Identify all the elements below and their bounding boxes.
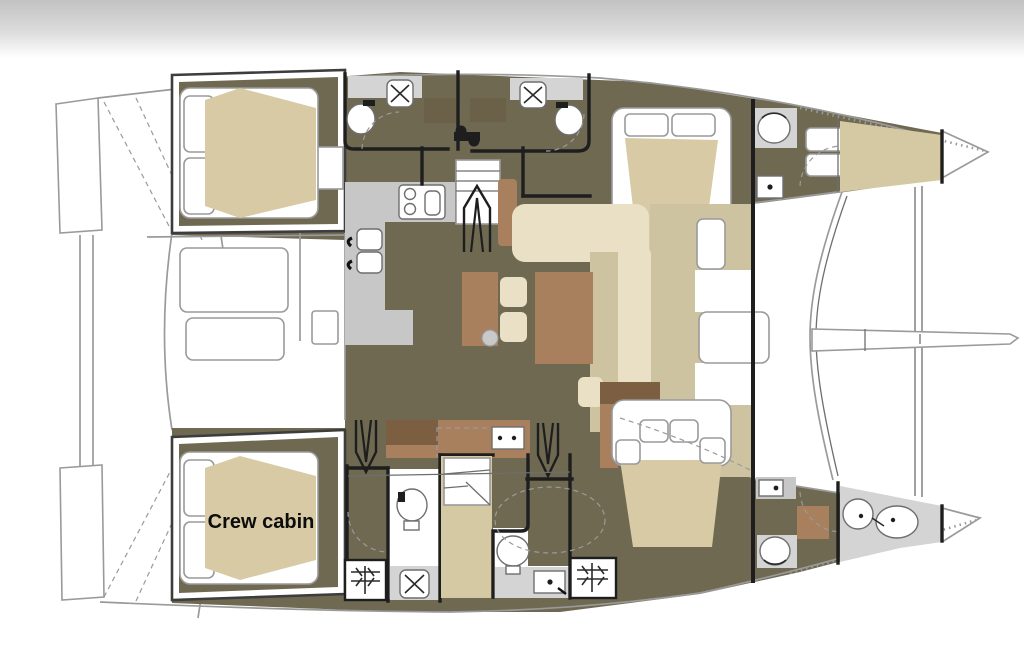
pillow [625, 114, 668, 136]
port-transom-platform [56, 98, 102, 233]
aft-cabinet-dark [386, 420, 438, 445]
stool [500, 277, 527, 307]
port-bow-tip [942, 131, 988, 178]
walkway [695, 270, 751, 312]
pillow [670, 420, 698, 442]
top-gradient-band [0, 0, 1024, 58]
aft-cabinet [386, 420, 530, 458]
walkway [695, 363, 751, 405]
toilet-icon [758, 113, 790, 143]
washbasin-icon [534, 571, 566, 594]
nav-seat [697, 219, 725, 269]
vent-grate-icon [345, 560, 386, 600]
cockpit-step [312, 311, 338, 344]
pillow [640, 420, 668, 442]
foredeck [810, 186, 1018, 497]
bed-arm [616, 440, 640, 464]
bowsprit-spine [812, 329, 1018, 351]
floor-plan: Crew cabin [0, 0, 1024, 671]
head-locker [424, 98, 459, 123]
port-transom-steps [104, 102, 170, 228]
pillow [672, 114, 715, 136]
cockpit [147, 233, 345, 360]
table-leg [482, 330, 498, 346]
cockpit-bench [180, 248, 288, 312]
starboard-transom-steps [104, 472, 170, 597]
crew-cabin: Crew cabin [172, 430, 345, 600]
double-bed-mattress [620, 460, 722, 547]
washbasin-icon [759, 480, 783, 496]
shower-icon [520, 82, 546, 108]
washbasin-icon [757, 176, 783, 198]
bed-arm [700, 438, 725, 463]
head-locker [470, 98, 506, 122]
galley-floor [345, 310, 413, 345]
shower-icon [400, 570, 429, 598]
wardrobe [441, 456, 492, 598]
double-bed-mattress [205, 88, 316, 218]
cockpit-bench [186, 318, 284, 360]
toilet-icon [760, 537, 790, 565]
sink-icon [492, 427, 524, 449]
stool [578, 377, 603, 407]
dinette-table [535, 272, 593, 364]
cockpit-aft-edge [165, 233, 173, 430]
shower-icon [387, 80, 413, 107]
shower-tray [797, 506, 829, 539]
stove-icon [399, 185, 445, 219]
vent-grate-icon [570, 558, 616, 598]
starboard-transom-platform [60, 465, 104, 600]
foredeck-door [699, 312, 769, 363]
crew-cabin-label: Crew cabin [208, 511, 315, 533]
starboard-head-aft [388, 455, 440, 601]
port-aft-cabin [172, 70, 345, 233]
stool [500, 312, 527, 342]
